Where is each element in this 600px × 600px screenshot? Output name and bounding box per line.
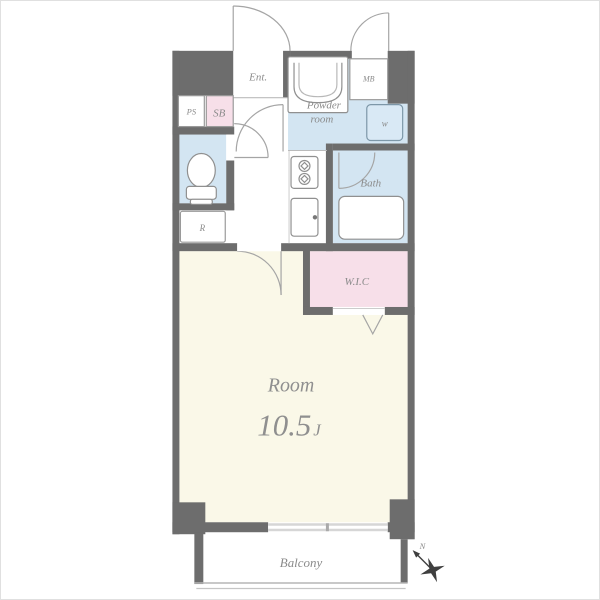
wall-under-shoebox xyxy=(172,127,234,135)
compass-north-icon: N xyxy=(413,541,445,582)
wic-label: W.I.C xyxy=(345,276,370,288)
pipe-space-label: PS xyxy=(186,107,197,117)
washer-label: w xyxy=(382,119,388,129)
wall-powder-bath xyxy=(333,144,415,151)
toilet-door-opening xyxy=(226,135,234,161)
sliding-window-mullion xyxy=(326,523,329,531)
shoe-box-label: SB xyxy=(213,108,225,120)
pillar-bottom-right xyxy=(390,499,415,539)
wall-room-top-right xyxy=(281,243,415,251)
bath-label: Bath xyxy=(360,177,381,189)
balcony-wall-right xyxy=(401,539,408,583)
toilet-icon xyxy=(186,153,216,204)
wall-toilet-right xyxy=(226,160,234,210)
refrigerator-label: R xyxy=(199,223,206,233)
stove-icon xyxy=(291,156,318,188)
entrance-door-arc xyxy=(233,6,290,51)
powder-room-label-1: Powder xyxy=(306,100,342,112)
wall-wic-bottom-right xyxy=(385,307,415,315)
meter-box-label: MB xyxy=(362,75,375,84)
powder-room-label-2: room xyxy=(311,114,334,126)
kitchen-sink-icon xyxy=(291,198,318,236)
wall-room-top-left xyxy=(172,243,237,251)
floor-plan-canvas: Ent. PS SB MB Powder room w Bath R W.I.C… xyxy=(0,0,600,600)
bathtub-icon xyxy=(339,196,404,239)
balcony-wall-left xyxy=(194,532,203,584)
meter-box-door-arc xyxy=(351,13,389,51)
wall-top-left-block xyxy=(172,51,233,96)
wall-wic-left xyxy=(303,250,310,315)
wall-wic-bottom-left xyxy=(303,307,333,315)
room-label: Room xyxy=(267,375,314,397)
room-size-value: 10.5 xyxy=(257,408,311,443)
compass-north-label: N xyxy=(419,541,427,551)
floor-plan-svg: Ent. PS SB MB Powder room w Bath R W.I.C… xyxy=(1,1,599,599)
pillar-bottom-left xyxy=(172,502,205,534)
wall-kitchen-bath xyxy=(326,144,333,252)
entrance-label: Ent. xyxy=(248,72,267,84)
wall-right xyxy=(408,51,415,539)
balcony-label: Balcony xyxy=(280,555,323,570)
room-door-opening xyxy=(237,243,281,251)
